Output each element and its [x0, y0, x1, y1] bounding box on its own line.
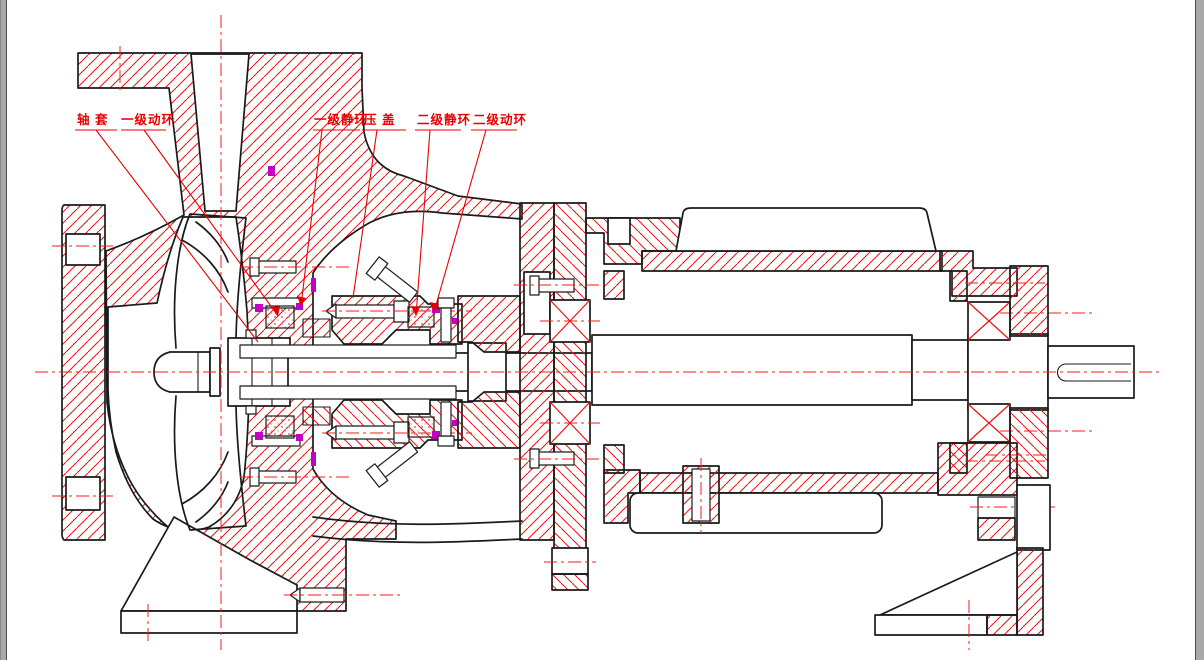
support-gusset: [880, 552, 1017, 615]
bracket-flanges: [520, 203, 596, 590]
label-stage1-stationary-ring: 一级静环: [314, 112, 368, 127]
label-stage1-rotating-ring: 一级动环: [121, 112, 175, 127]
motor-flange: [554, 203, 586, 550]
label-stage2-stationary-ring: 二级静环: [417, 112, 471, 127]
motor-foot: [630, 493, 882, 533]
support-column: [1017, 548, 1043, 635]
terminal-box: [676, 208, 936, 251]
window-edge-right: [1195, 0, 1204, 660]
window-edge-left: [0, 0, 7, 660]
drawing-canvas[interactable]: 轴 套 一级动环 一级静环 压 盖 二级静环 二级动环: [0, 0, 1204, 660]
pump-section-drawing: 轴 套 一级动环 一级静环 压 盖 二级静环 二级动环: [0, 0, 1204, 660]
motor-rotor: [592, 335, 912, 405]
label-stage2-rotating-ring: 二级动环: [473, 112, 527, 127]
rear-support: [875, 548, 1043, 650]
label-shaft-sleeve: 轴 套: [77, 112, 108, 127]
label-gland: 压 盖: [364, 112, 395, 127]
motor-casing-top: [642, 251, 942, 271]
